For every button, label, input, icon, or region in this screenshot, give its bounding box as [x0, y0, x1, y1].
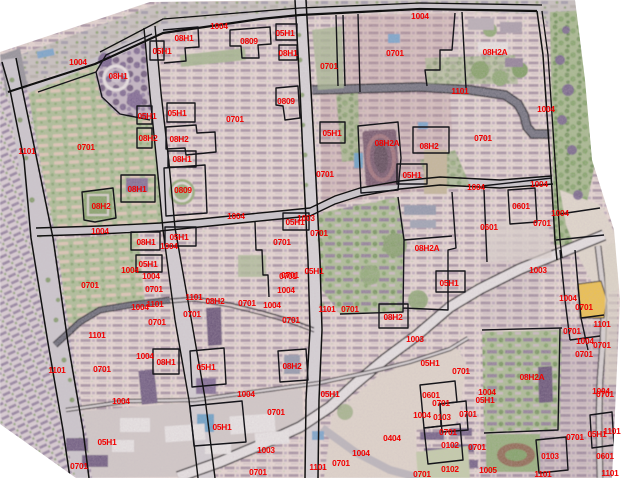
- svg-text:05H1: 05H1: [275, 28, 295, 38]
- svg-text:0701: 0701: [310, 228, 328, 238]
- svg-text:1101: 1101: [185, 292, 203, 302]
- svg-text:08H2: 08H2: [282, 361, 302, 371]
- svg-text:05H1: 05H1: [137, 111, 157, 121]
- svg-text:08H1: 08H1: [127, 184, 147, 194]
- svg-text:0701: 0701: [320, 61, 338, 71]
- svg-text:1004: 1004: [551, 208, 569, 218]
- svg-text:1005: 1005: [479, 465, 497, 475]
- svg-text:1004: 1004: [142, 271, 160, 281]
- svg-text:1101: 1101: [309, 462, 327, 472]
- svg-text:1004: 1004: [576, 336, 594, 346]
- svg-text:08H2: 08H2: [419, 141, 439, 151]
- svg-text:0701: 0701: [452, 366, 470, 376]
- svg-text:05H1: 05H1: [304, 266, 324, 276]
- svg-text:08H2: 08H2: [138, 133, 158, 143]
- svg-text:0701: 0701: [468, 442, 486, 452]
- svg-text:1004: 1004: [237, 389, 255, 399]
- svg-text:05H1: 05H1: [212, 422, 232, 432]
- svg-text:0701: 0701: [575, 349, 593, 359]
- svg-text:1003: 1003: [257, 445, 275, 455]
- svg-text:1004: 1004: [136, 351, 154, 361]
- svg-text:08H2A: 08H2A: [520, 372, 545, 382]
- svg-text:0809: 0809: [174, 185, 192, 195]
- svg-text:0701: 0701: [575, 302, 593, 312]
- svg-text:0701: 0701: [81, 280, 99, 290]
- svg-text:1004: 1004: [112, 396, 130, 406]
- svg-text:1004: 1004: [352, 448, 370, 458]
- svg-text:1004: 1004: [277, 285, 295, 295]
- svg-text:0701: 0701: [226, 114, 244, 124]
- svg-text:08H2A: 08H2A: [483, 47, 508, 57]
- svg-text:05H1: 05H1: [402, 170, 422, 180]
- svg-text:08H1: 08H1: [172, 154, 192, 164]
- svg-text:1004: 1004: [530, 179, 548, 189]
- svg-text:1004: 1004: [160, 241, 178, 251]
- svg-text:1003: 1003: [406, 334, 424, 344]
- svg-text:1003: 1003: [297, 213, 315, 223]
- svg-text:0701: 0701: [282, 315, 300, 325]
- svg-text:08H2: 08H2: [169, 134, 189, 144]
- svg-text:0701: 0701: [413, 469, 431, 478]
- svg-text:1004: 1004: [537, 104, 555, 114]
- svg-text:1101: 1101: [88, 330, 106, 340]
- svg-text:0103: 0103: [541, 451, 559, 461]
- svg-text:0701: 0701: [566, 432, 584, 442]
- svg-text:0701: 0701: [145, 284, 163, 294]
- svg-text:0809: 0809: [240, 36, 258, 46]
- svg-text:05H1: 05H1: [475, 395, 495, 405]
- svg-text:0701: 0701: [267, 407, 285, 417]
- svg-text:08H1: 08H1: [278, 48, 298, 58]
- svg-text:1101: 1101: [593, 319, 611, 329]
- svg-text:05H1: 05H1: [152, 46, 172, 56]
- svg-text:1101: 1101: [48, 365, 66, 375]
- svg-text:1004: 1004: [263, 300, 281, 310]
- svg-text:05H1: 05H1: [420, 358, 440, 368]
- svg-text:08H1: 08H1: [156, 357, 176, 367]
- svg-text:1004: 1004: [69, 57, 87, 67]
- svg-text:0701: 0701: [273, 237, 291, 247]
- svg-text:0601: 0601: [422, 390, 440, 400]
- svg-text:05H1: 05H1: [439, 278, 459, 288]
- svg-text:0701: 0701: [563, 326, 581, 336]
- svg-text:0701: 0701: [474, 133, 492, 143]
- svg-text:0103: 0103: [433, 412, 451, 422]
- svg-text:08H2A: 08H2A: [415, 243, 440, 253]
- svg-text:0701: 0701: [93, 364, 111, 374]
- svg-text:05H1: 05H1: [322, 128, 342, 138]
- svg-text:1003: 1003: [529, 265, 547, 275]
- svg-text:0102: 0102: [441, 464, 459, 474]
- svg-text:05H1: 05H1: [138, 259, 158, 269]
- svg-text:08H1: 08H1: [174, 33, 194, 43]
- svg-text:0701: 0701: [183, 309, 201, 319]
- svg-text:08H2A: 08H2A: [375, 138, 400, 148]
- svg-text:0701: 0701: [70, 461, 88, 471]
- svg-text:1101: 1101: [18, 146, 36, 156]
- svg-text:08H1: 08H1: [108, 71, 128, 81]
- svg-text:08H1: 08H1: [136, 237, 156, 247]
- svg-text:1004: 1004: [210, 21, 228, 31]
- svg-text:1004: 1004: [413, 410, 431, 420]
- svg-text:0701: 0701: [459, 409, 477, 419]
- svg-text:0601: 0601: [480, 222, 498, 232]
- svg-text:05H1: 05H1: [196, 362, 216, 372]
- svg-text:0601: 0601: [596, 451, 614, 461]
- svg-text:1101: 1101: [603, 426, 621, 436]
- svg-text:0701: 0701: [386, 48, 404, 58]
- svg-text:1004: 1004: [121, 265, 139, 275]
- svg-text:0701: 0701: [533, 218, 551, 228]
- svg-text:0701: 0701: [249, 467, 267, 477]
- svg-text:1101: 1101: [146, 299, 164, 309]
- svg-text:0809: 0809: [277, 96, 295, 106]
- svg-text:05H1: 05H1: [320, 389, 340, 399]
- svg-text:0701: 0701: [341, 304, 359, 314]
- svg-text:1101: 1101: [534, 469, 552, 478]
- svg-text:1101: 1101: [318, 304, 336, 314]
- svg-text:0701: 0701: [593, 340, 611, 350]
- svg-text:1004: 1004: [411, 11, 429, 21]
- svg-text:0601: 0601: [512, 201, 530, 211]
- svg-text:0701: 0701: [238, 298, 256, 308]
- svg-text:05H1: 05H1: [97, 437, 117, 447]
- svg-text:0701: 0701: [316, 169, 334, 179]
- svg-text:1004: 1004: [467, 182, 485, 192]
- svg-text:08H2: 08H2: [383, 312, 403, 322]
- svg-text:0701: 0701: [279, 271, 297, 281]
- svg-text:1004: 1004: [227, 211, 245, 221]
- svg-text:0701: 0701: [439, 427, 457, 437]
- svg-text:0701: 0701: [332, 458, 350, 468]
- svg-text:0701: 0701: [596, 389, 614, 399]
- svg-text:0102: 0102: [441, 440, 459, 450]
- svg-text:0404: 0404: [383, 433, 401, 443]
- svg-text:05H1: 05H1: [167, 108, 187, 118]
- svg-text:1004: 1004: [91, 226, 109, 236]
- svg-text:08H2: 08H2: [91, 201, 111, 211]
- svg-text:1101: 1101: [601, 468, 619, 478]
- svg-text:08H2: 08H2: [205, 296, 225, 306]
- svg-text:1101: 1101: [451, 86, 469, 96]
- svg-text:0701: 0701: [77, 142, 95, 152]
- svg-text:0701: 0701: [148, 317, 166, 327]
